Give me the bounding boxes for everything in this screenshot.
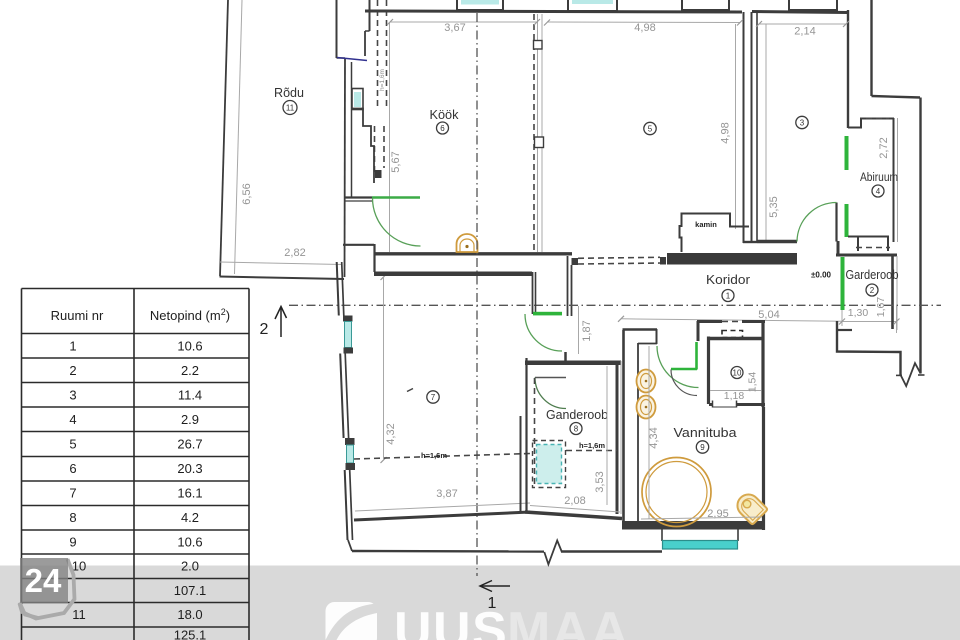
svg-text:5,67: 5,67 bbox=[390, 151, 402, 172]
svg-text:4,98: 4,98 bbox=[634, 22, 655, 34]
svg-text:26.7: 26.7 bbox=[177, 437, 202, 452]
svg-text:Garderoob: Garderoob bbox=[846, 267, 899, 282]
svg-text:7: 7 bbox=[69, 486, 76, 501]
svg-text:Koridor: Koridor bbox=[706, 272, 751, 287]
svg-text:125.1: 125.1 bbox=[174, 628, 207, 640]
svg-text:3,87: 3,87 bbox=[436, 488, 457, 500]
svg-text:4: 4 bbox=[876, 187, 881, 196]
svg-text:2.2: 2.2 bbox=[181, 363, 199, 378]
svg-text:4.2: 4.2 bbox=[181, 510, 199, 525]
svg-text:3,67: 3,67 bbox=[444, 22, 465, 34]
svg-text:5,35: 5,35 bbox=[768, 196, 780, 217]
svg-text:16.1: 16.1 bbox=[177, 486, 202, 501]
svg-text:Ruumi nr: Ruumi nr bbox=[51, 308, 104, 323]
svg-text:10.6: 10.6 bbox=[177, 535, 202, 550]
svg-text:2.0: 2.0 bbox=[181, 559, 199, 574]
svg-text:Vannituba: Vannituba bbox=[674, 425, 738, 440]
svg-text:1: 1 bbox=[726, 292, 731, 301]
svg-text:11.4: 11.4 bbox=[178, 388, 202, 403]
svg-text:Netopind (m2): Netopind (m2) bbox=[150, 307, 230, 323]
svg-text:h=1,6m: h=1,6m bbox=[421, 451, 447, 460]
svg-text:h=1,6m: h=1,6m bbox=[579, 441, 605, 450]
svg-text:7: 7 bbox=[431, 393, 436, 402]
svg-text:5,04: 5,04 bbox=[758, 309, 779, 321]
svg-text:5: 5 bbox=[648, 125, 653, 134]
svg-text:9: 9 bbox=[700, 443, 705, 452]
svg-text:Köök: Köök bbox=[430, 107, 459, 122]
svg-text:1,54: 1,54 bbox=[747, 372, 759, 393]
svg-text:10: 10 bbox=[733, 369, 742, 378]
svg-text:18.0: 18.0 bbox=[177, 607, 202, 622]
svg-text:Rõdu: Rõdu bbox=[274, 85, 304, 100]
svg-text:20.3: 20.3 bbox=[177, 461, 202, 476]
svg-text:6: 6 bbox=[69, 461, 76, 476]
svg-text:2,82: 2,82 bbox=[284, 247, 305, 259]
svg-text:11: 11 bbox=[72, 607, 86, 622]
svg-text:2,72: 2,72 bbox=[878, 137, 890, 158]
svg-text:2,08: 2,08 bbox=[564, 495, 585, 507]
svg-text:Abiruum: Abiruum bbox=[860, 172, 898, 184]
svg-text:3: 3 bbox=[800, 119, 805, 128]
svg-text:6,56: 6,56 bbox=[241, 183, 253, 204]
svg-text:2: 2 bbox=[870, 286, 875, 295]
svg-text:3,53: 3,53 bbox=[594, 471, 606, 492]
svg-text:2: 2 bbox=[260, 321, 269, 338]
svg-text:h=1,6m: h=1,6m bbox=[379, 69, 386, 91]
svg-text:1: 1 bbox=[69, 339, 76, 354]
svg-text:3: 3 bbox=[69, 388, 76, 403]
svg-text:11: 11 bbox=[286, 104, 295, 113]
svg-text:1,30: 1,30 bbox=[848, 307, 869, 319]
svg-text:8: 8 bbox=[574, 425, 579, 434]
svg-text:2.9: 2.9 bbox=[181, 412, 199, 427]
svg-text:24: 24 bbox=[25, 562, 62, 599]
svg-text:MAA: MAA bbox=[507, 602, 630, 640]
svg-text:4,32: 4,32 bbox=[385, 423, 397, 444]
svg-text:8: 8 bbox=[69, 510, 76, 525]
svg-text:1,18: 1,18 bbox=[724, 390, 745, 402]
svg-text:9: 9 bbox=[69, 535, 76, 550]
svg-text:4: 4 bbox=[69, 412, 76, 427]
svg-text:6: 6 bbox=[440, 124, 445, 133]
svg-text:2,14: 2,14 bbox=[794, 26, 815, 38]
svg-text:10.6: 10.6 bbox=[177, 339, 202, 354]
svg-text:107.1: 107.1 bbox=[174, 583, 207, 598]
svg-text:1,67: 1,67 bbox=[875, 297, 887, 318]
svg-text:5: 5 bbox=[69, 437, 76, 452]
svg-text:Ganderoob: Ganderoob bbox=[546, 407, 608, 422]
svg-text:1: 1 bbox=[488, 595, 497, 612]
svg-text:kamin: kamin bbox=[695, 220, 717, 229]
svg-text:4,34: 4,34 bbox=[648, 427, 660, 448]
svg-text:±0.00: ±0.00 bbox=[811, 271, 832, 280]
svg-text:4,98: 4,98 bbox=[720, 122, 732, 143]
svg-text:2: 2 bbox=[69, 363, 76, 378]
svg-text:1,87: 1,87 bbox=[581, 320, 593, 341]
